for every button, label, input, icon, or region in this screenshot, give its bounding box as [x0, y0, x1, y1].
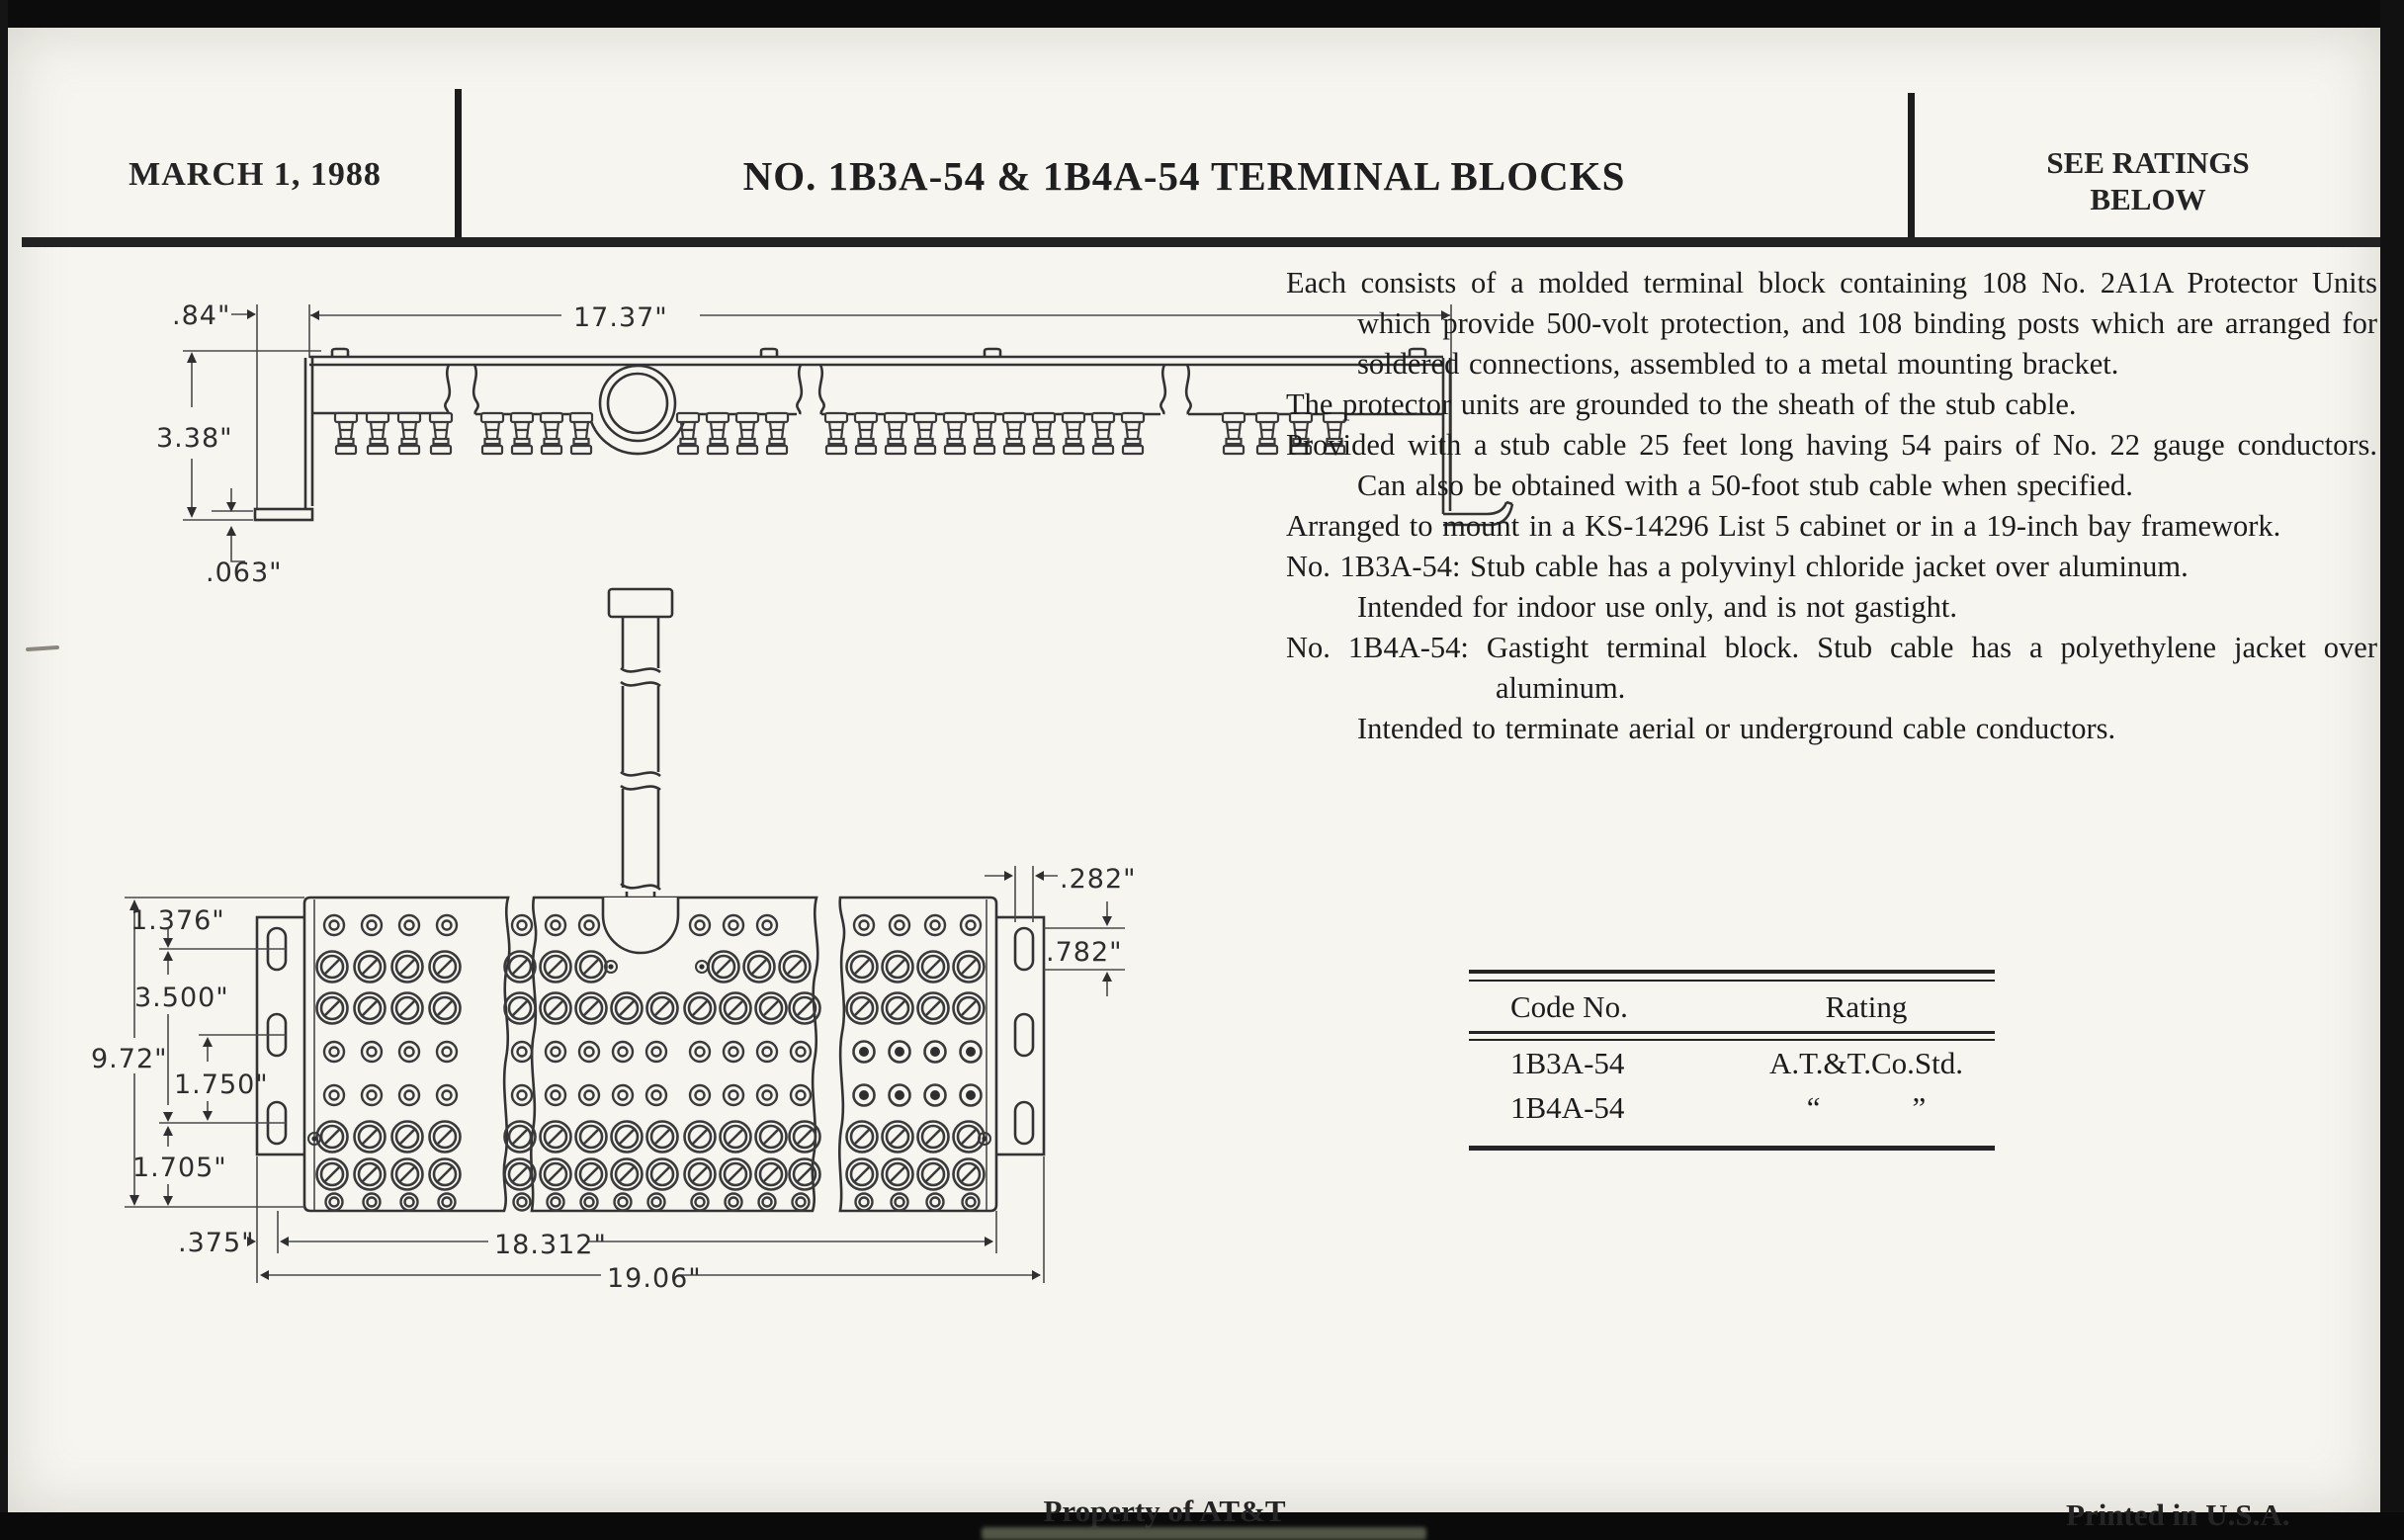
terminal-circle: [514, 1194, 531, 1211]
terminal-circle: [576, 993, 607, 1024]
terminal-circle: [576, 952, 607, 983]
column-header-rating: Rating: [1738, 989, 1995, 1025]
terminal-circle: [576, 1159, 607, 1190]
dim-slot-width: .282": [1060, 864, 1137, 895]
code-cell: 1B3A-54: [1469, 1046, 1738, 1081]
description-paragraph: Each consists of a molded terminal block…: [1286, 263, 2377, 385]
cutoff-text-smudge: [982, 1527, 1426, 1540]
terminal-circle: [612, 993, 643, 1024]
protector-post: [855, 413, 877, 454]
protector-post: [766, 413, 788, 454]
protector-post: [974, 413, 995, 454]
dim-overall-height: 9.72": [91, 1044, 168, 1074]
dim-overall-width: 17.37": [573, 302, 668, 333]
table-rule-bottom: [1469, 1146, 1995, 1151]
dim-block-width: 18.312": [494, 1230, 607, 1260]
terminal-circle: [685, 993, 716, 1024]
terminal-circle: [647, 993, 678, 1024]
description-text: Each consists of a molded terminal block…: [1286, 263, 2377, 749]
dim-slot2-to-slot3: 1.750": [174, 1069, 269, 1100]
scan-edge-top: [0, 0, 2404, 28]
printed-notice: Printed in U.S.A.: [2066, 1497, 2382, 1533]
terminal-circle: [780, 952, 811, 983]
protector-post: [1092, 413, 1114, 454]
protector-post: [335, 413, 357, 454]
terminal-circle: [505, 1122, 536, 1153]
protector-post: [914, 413, 936, 454]
terminal-circle: [883, 1122, 913, 1153]
terminal-circle: [355, 1159, 386, 1190]
terminal-circle: [721, 993, 751, 1024]
terminal-circle: [317, 993, 348, 1024]
terminal-circle: [512, 915, 532, 935]
property-notice: Property of AT&T: [1006, 1494, 1323, 1529]
ratings-note-line2: BELOW: [1926, 181, 2370, 217]
terminal-circle: [392, 993, 423, 1024]
terminal-circle: [756, 1159, 787, 1190]
protector-post: [1223, 413, 1245, 454]
terminal-circle: [541, 1122, 571, 1153]
protector-post: [1033, 413, 1055, 454]
terminal-circle: [392, 1159, 423, 1190]
terminal-circle: [709, 952, 739, 983]
terminal-circle: [918, 993, 949, 1024]
terminal-circle: [505, 952, 536, 983]
dim-height: 3.38": [156, 423, 233, 454]
terminal-circle: [954, 993, 985, 1024]
description-paragraph: Intended for indoor use only, and is not…: [1286, 587, 2377, 628]
table-rule-mid: [1469, 1031, 1995, 1041]
rating-cell: A.T.&T.Co.Std.: [1738, 1046, 1995, 1081]
terminal-circle: [392, 1122, 423, 1153]
terminal-circle: [744, 952, 775, 983]
terminal-circle: [512, 1042, 532, 1062]
protector-post: [885, 413, 906, 454]
description-paragraph: Intended to terminate aerial or undergro…: [1286, 709, 2377, 749]
protector-post: [570, 413, 592, 454]
stub-cable: [603, 589, 678, 953]
terminal-circle: [612, 1122, 643, 1153]
dim-bracket-offset: .84": [172, 300, 230, 331]
terminal-circle: [317, 952, 348, 983]
terminal-circle: [847, 993, 878, 1024]
terminal-circle: [541, 993, 571, 1024]
ratings-table: Code No. Rating 1B3A-54 A.T.&T.Co.Std. 1…: [1469, 970, 1995, 1151]
terminal-circle: [918, 952, 949, 983]
description-paragraph: No. 1B4A-54: Gastight terminal block. St…: [1286, 628, 2377, 709]
description-paragraph: Provided with a stub cable 25 feet long …: [1286, 425, 2377, 506]
ratings-note-line1: SEE RATINGS: [1926, 144, 2370, 181]
dim-slot3-to-bottom: 1.705": [132, 1153, 227, 1183]
protector-post: [677, 413, 699, 454]
description-paragraph: The protector units are grounded to the …: [1286, 385, 2377, 425]
dim-top-to-slot1: 1.376": [130, 905, 225, 936]
protector-post: [398, 413, 420, 454]
dim-slot-height: .782": [1046, 937, 1123, 968]
terminal-circle: [355, 993, 386, 1024]
terminal-circle: [647, 1122, 678, 1153]
terminal-circle: [317, 1122, 348, 1153]
dim-bracket-inset: .375": [178, 1228, 255, 1258]
protector-post: [944, 413, 966, 454]
terminal-circle: [685, 1122, 716, 1153]
scan-edge-left: [0, 0, 8, 1512]
protector-post: [1003, 413, 1025, 454]
terminal-circle: [918, 1159, 949, 1190]
terminal-circle: [847, 952, 878, 983]
terminal-circle: [954, 952, 985, 983]
protector-post: [367, 413, 388, 454]
table-row: 1B4A-54 “ ”: [1469, 1085, 1995, 1130]
terminal-circle: [355, 1122, 386, 1153]
terminal-circle: [647, 1159, 678, 1190]
rating-cell-ditto: “ ”: [1738, 1090, 1995, 1126]
terminal-circle: [430, 1159, 461, 1190]
mounting-flange-left: [257, 917, 310, 1155]
protector-post: [541, 413, 562, 454]
terminal-circle: [317, 1159, 348, 1190]
protector-post: [1063, 413, 1084, 454]
dim-foot-thickness: .063": [206, 557, 283, 588]
table-header-row: Code No. Rating: [1469, 982, 1995, 1031]
protector-post: [825, 413, 847, 454]
terminal-circle: [954, 1159, 985, 1190]
terminal-circle: [685, 1159, 716, 1190]
table-row: 1B3A-54 A.T.&T.Co.Std.: [1469, 1041, 1995, 1085]
terminal-circle: [430, 1122, 461, 1153]
protector-post: [1122, 413, 1144, 454]
terminal-circle: [790, 1159, 820, 1190]
dim-overall-width-plan: 19.06": [607, 1263, 702, 1294]
terminal-circle: [918, 1122, 949, 1153]
plan-view: 9.72" 1.376" 3.500" 1.705" 1.750" .375": [91, 589, 1137, 1294]
terminal-circle: [576, 1122, 607, 1153]
protector-post: [736, 413, 758, 454]
terminal-circle: [883, 1159, 913, 1190]
terminal-circle: [883, 993, 913, 1024]
bracket-foot-left: [255, 509, 312, 520]
terminal-circle: [392, 952, 423, 983]
scan-edge-right: [2380, 0, 2404, 1512]
bracket-rail: [309, 357, 1443, 365]
terminal-circle: [790, 1122, 820, 1153]
protector-post: [707, 413, 729, 454]
code-cell: 1B4A-54: [1469, 1090, 1738, 1126]
terminal-circle: [505, 1159, 536, 1190]
terminal-circle: [847, 1159, 878, 1190]
cable-entry-hub: [600, 366, 675, 441]
table-rule-top: [1469, 970, 1995, 982]
terminal-circle: [541, 952, 571, 983]
terminal-circle: [756, 993, 787, 1024]
description-paragraph: Arranged to mount in a KS-14296 List 5 c…: [1286, 506, 2377, 547]
terminal-circle: [541, 1159, 571, 1190]
terminal-circle: [430, 993, 461, 1024]
terminal-circle: [721, 1159, 751, 1190]
protector-post: [481, 413, 503, 454]
header-divider-right: [1908, 93, 1915, 239]
terminal-circle: [721, 1122, 751, 1153]
terminal-circle: [756, 1122, 787, 1153]
protector-post: [430, 413, 452, 454]
scanned-document: { "header": { "date": "MARCH 1, 1988", "…: [0, 0, 2404, 1512]
mounting-flange-right: [990, 917, 1044, 1155]
protector-posts: [335, 413, 1345, 454]
column-header-code: Code No.: [1469, 989, 1738, 1025]
document-page: MARCH 1, 1988 NO. 1B3A-54 & 1B4A-54 TERM…: [8, 28, 2380, 1512]
terminal-circle: [612, 1159, 643, 1190]
terminal-circle: [505, 993, 536, 1024]
terminal-circle: [355, 952, 386, 983]
terminal-circle: [790, 993, 820, 1024]
terminal-circle: [512, 1085, 532, 1105]
protector-post: [1256, 413, 1278, 454]
terminal-circle: [430, 952, 461, 983]
ratings-note: SEE RATINGS BELOW: [1926, 144, 2370, 217]
dim-slot1-to-slot3: 3.500": [134, 983, 229, 1013]
protector-post: [511, 413, 533, 454]
description-paragraph: No. 1B3A-54: Stub cable has a polyvinyl …: [1286, 547, 2377, 587]
terminal-circle: [847, 1122, 878, 1153]
terminal-circle: [883, 952, 913, 983]
